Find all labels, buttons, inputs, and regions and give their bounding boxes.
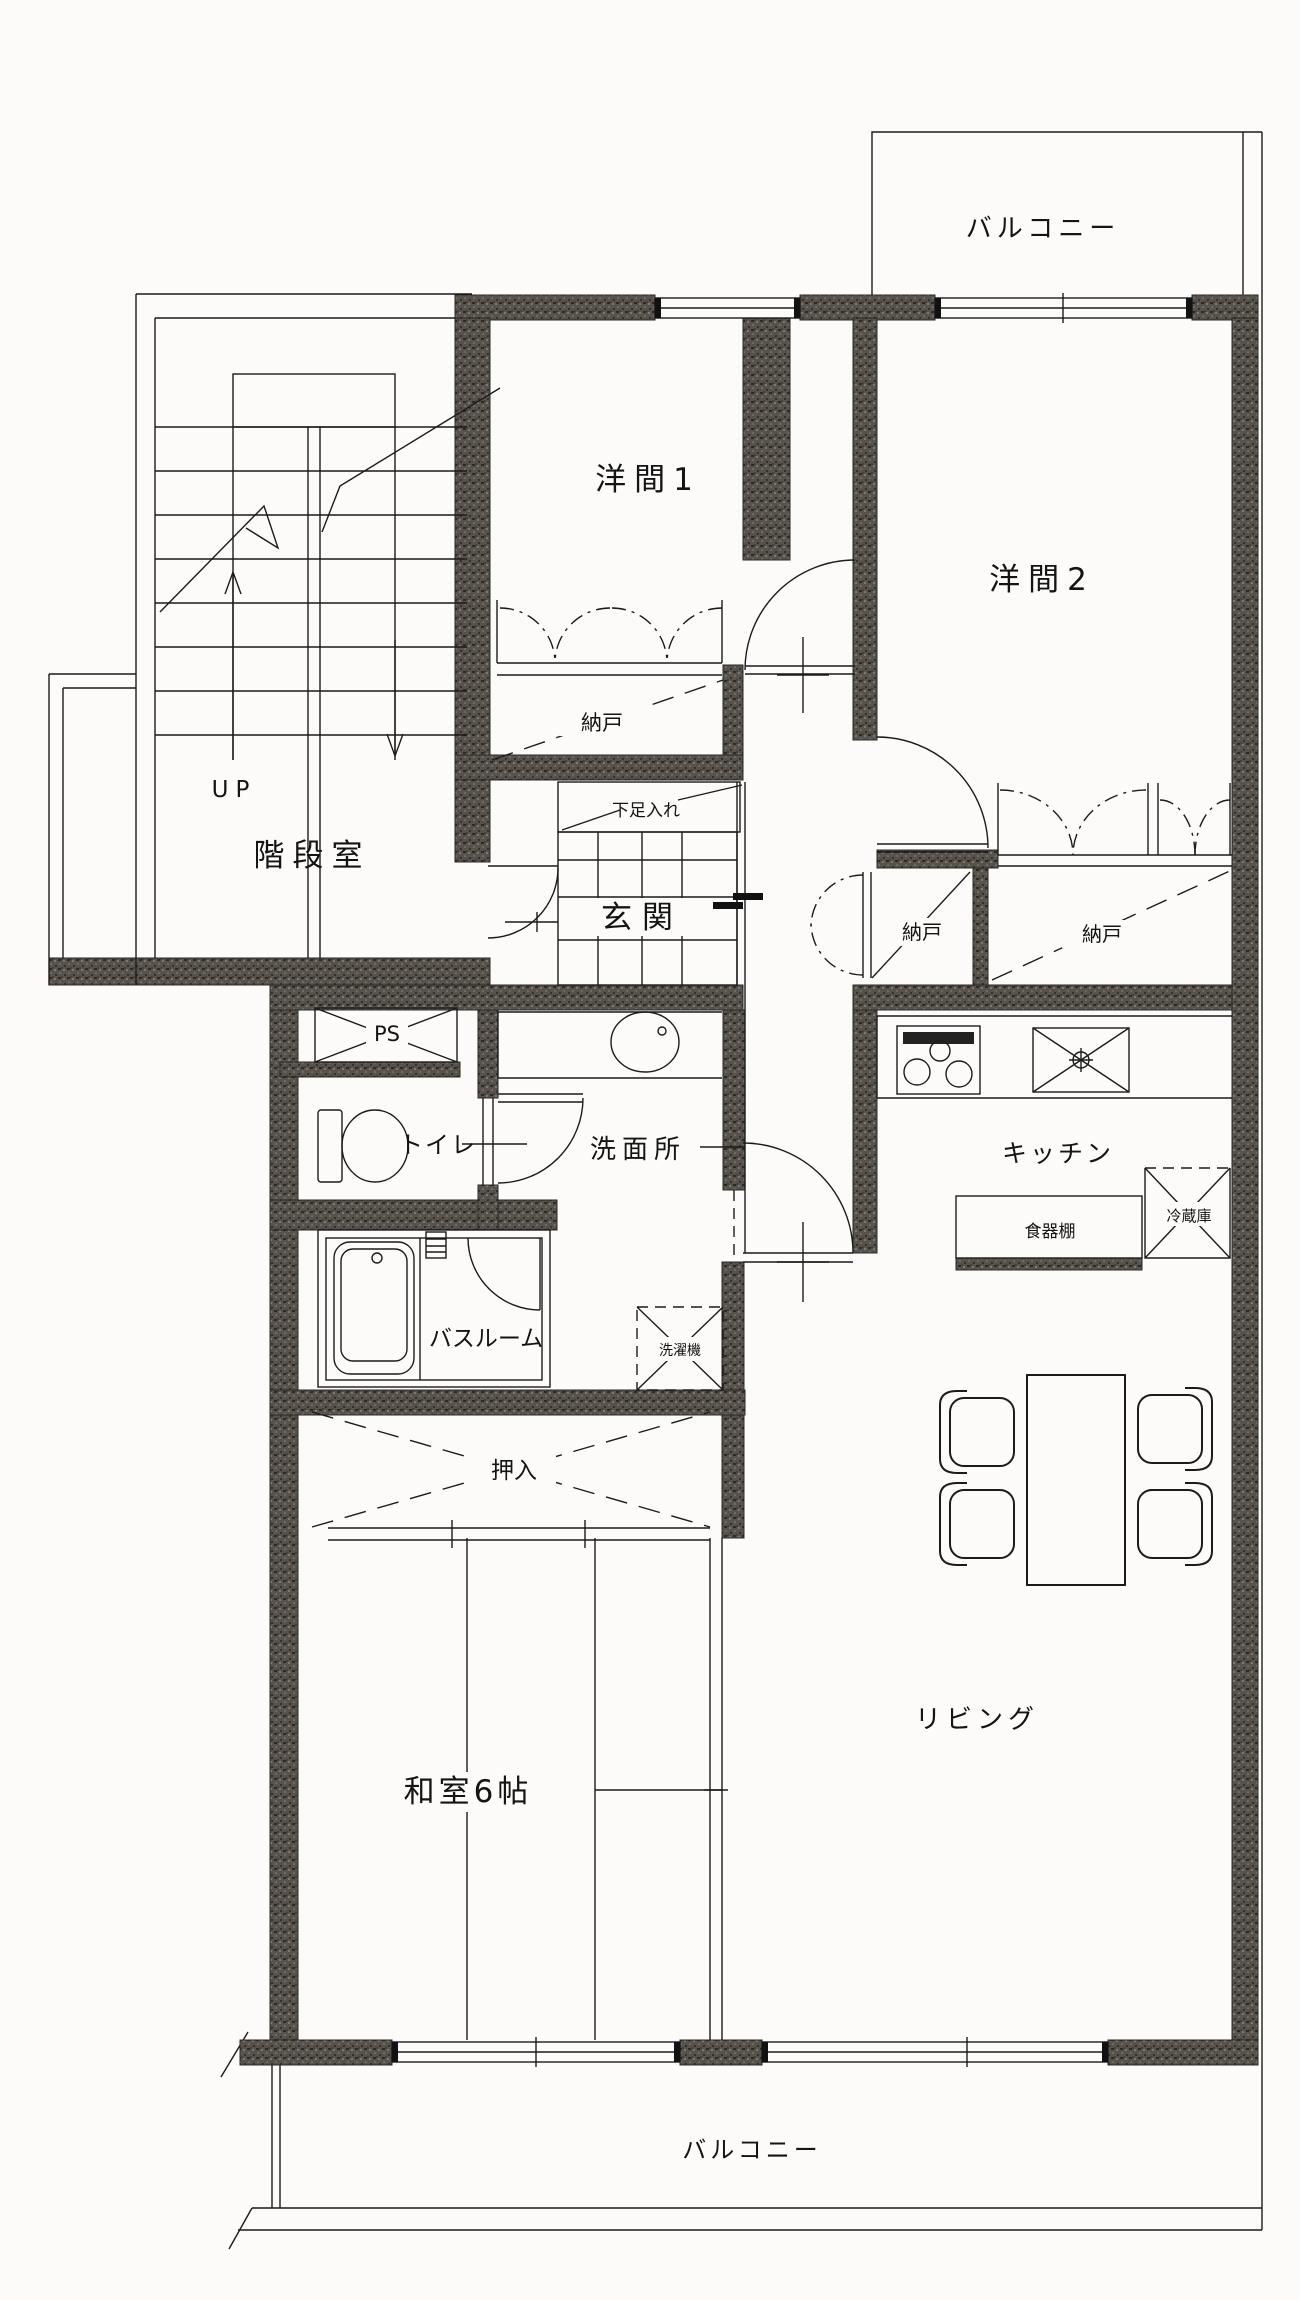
label-cupboard: 食器棚	[1025, 1222, 1076, 1242]
walls	[49, 295, 1258, 2065]
front-door-swing	[488, 868, 558, 938]
balcony-top	[872, 132, 1262, 2230]
toilet-door	[483, 1098, 493, 1185]
chair	[950, 1398, 1014, 1466]
label-washing-machine: 洗濯機	[659, 1343, 701, 1359]
label-stair-room: 階段室	[254, 838, 371, 874]
label-storage-2: 納戸	[902, 920, 942, 944]
dining-set	[940, 1375, 1212, 1585]
label-balcony-top: バルコニー	[966, 214, 1120, 244]
label-storage-1: 納戸	[581, 711, 623, 735]
label-up: UP	[212, 777, 257, 803]
chair	[1138, 1395, 1202, 1463]
washroom-door-swing	[498, 1098, 583, 1183]
window-room2-top	[935, 293, 1192, 323]
door-swing-living	[743, 1143, 853, 1253]
toilet-tank	[318, 1110, 342, 1182]
floor-plan-page: バルコニー 洋間1 洋間2 納戸 下足入れ 玄関 階段室 UP 納戸 納戸 PS…	[0, 0, 1300, 2300]
stairwell	[49, 294, 500, 985]
label-shoe-cabinet: 下足入れ	[612, 801, 680, 821]
labels: バルコニー 洋間1 洋間2 納戸 下足入れ 玄関 階段室 UP 納戸 納戸 PS…	[212, 214, 1212, 2164]
door-swing-room1	[745, 560, 855, 670]
window-washitsu-bottom	[392, 2037, 680, 2067]
label-refrigerator: 冷蔵庫	[1166, 1207, 1211, 1225]
stove-controls	[903, 1032, 974, 1044]
washbasin	[611, 1012, 679, 1072]
entrance-door-mark	[733, 893, 763, 900]
bathroom-unit	[318, 1230, 550, 1387]
entrance-door-mark	[713, 902, 743, 909]
label-western-room-2: 洋間2	[989, 562, 1095, 598]
folding-door-hall	[811, 875, 863, 927]
door-swing-room2	[877, 737, 988, 848]
window-room1-top	[655, 298, 800, 318]
label-kitchen: キッチン	[1002, 1139, 1114, 1168]
dining-table	[1027, 1375, 1125, 1585]
folding-door-hall	[811, 923, 863, 975]
label-washroom: 洗面所	[590, 1135, 686, 1165]
bathtub-drain	[372, 1253, 382, 1263]
fusuma-track	[710, 1538, 722, 2040]
label-western-room-1: 洋間1	[595, 462, 701, 498]
label-bathroom: バスルーム	[429, 1326, 543, 1352]
label-japanese-room: 和室6帖	[404, 1774, 533, 1810]
label-pipe-space: PS	[374, 1022, 400, 1046]
chair	[1138, 1490, 1202, 1558]
label-living: リビング	[915, 1705, 1039, 1735]
cross-mark	[777, 637, 829, 713]
label-storage-3: 納戸	[1082, 922, 1122, 946]
chair	[950, 1490, 1014, 1558]
label-closet: 押入	[491, 1458, 537, 1484]
label-toilet: トイレ	[399, 1131, 477, 1159]
floor-plan-drawing: バルコニー 洋間1 洋間2 納戸 下足入れ 玄関 階段室 UP 納戸 納戸 PS…	[0, 0, 1300, 2300]
bathroom-door-swing	[468, 1238, 540, 1310]
room2-closet-doors	[872, 783, 1232, 980]
label-entrance: 玄関	[601, 900, 683, 936]
window-living-bottom	[762, 2037, 1108, 2067]
label-balcony-bottom: バルコニー	[682, 2136, 822, 2164]
